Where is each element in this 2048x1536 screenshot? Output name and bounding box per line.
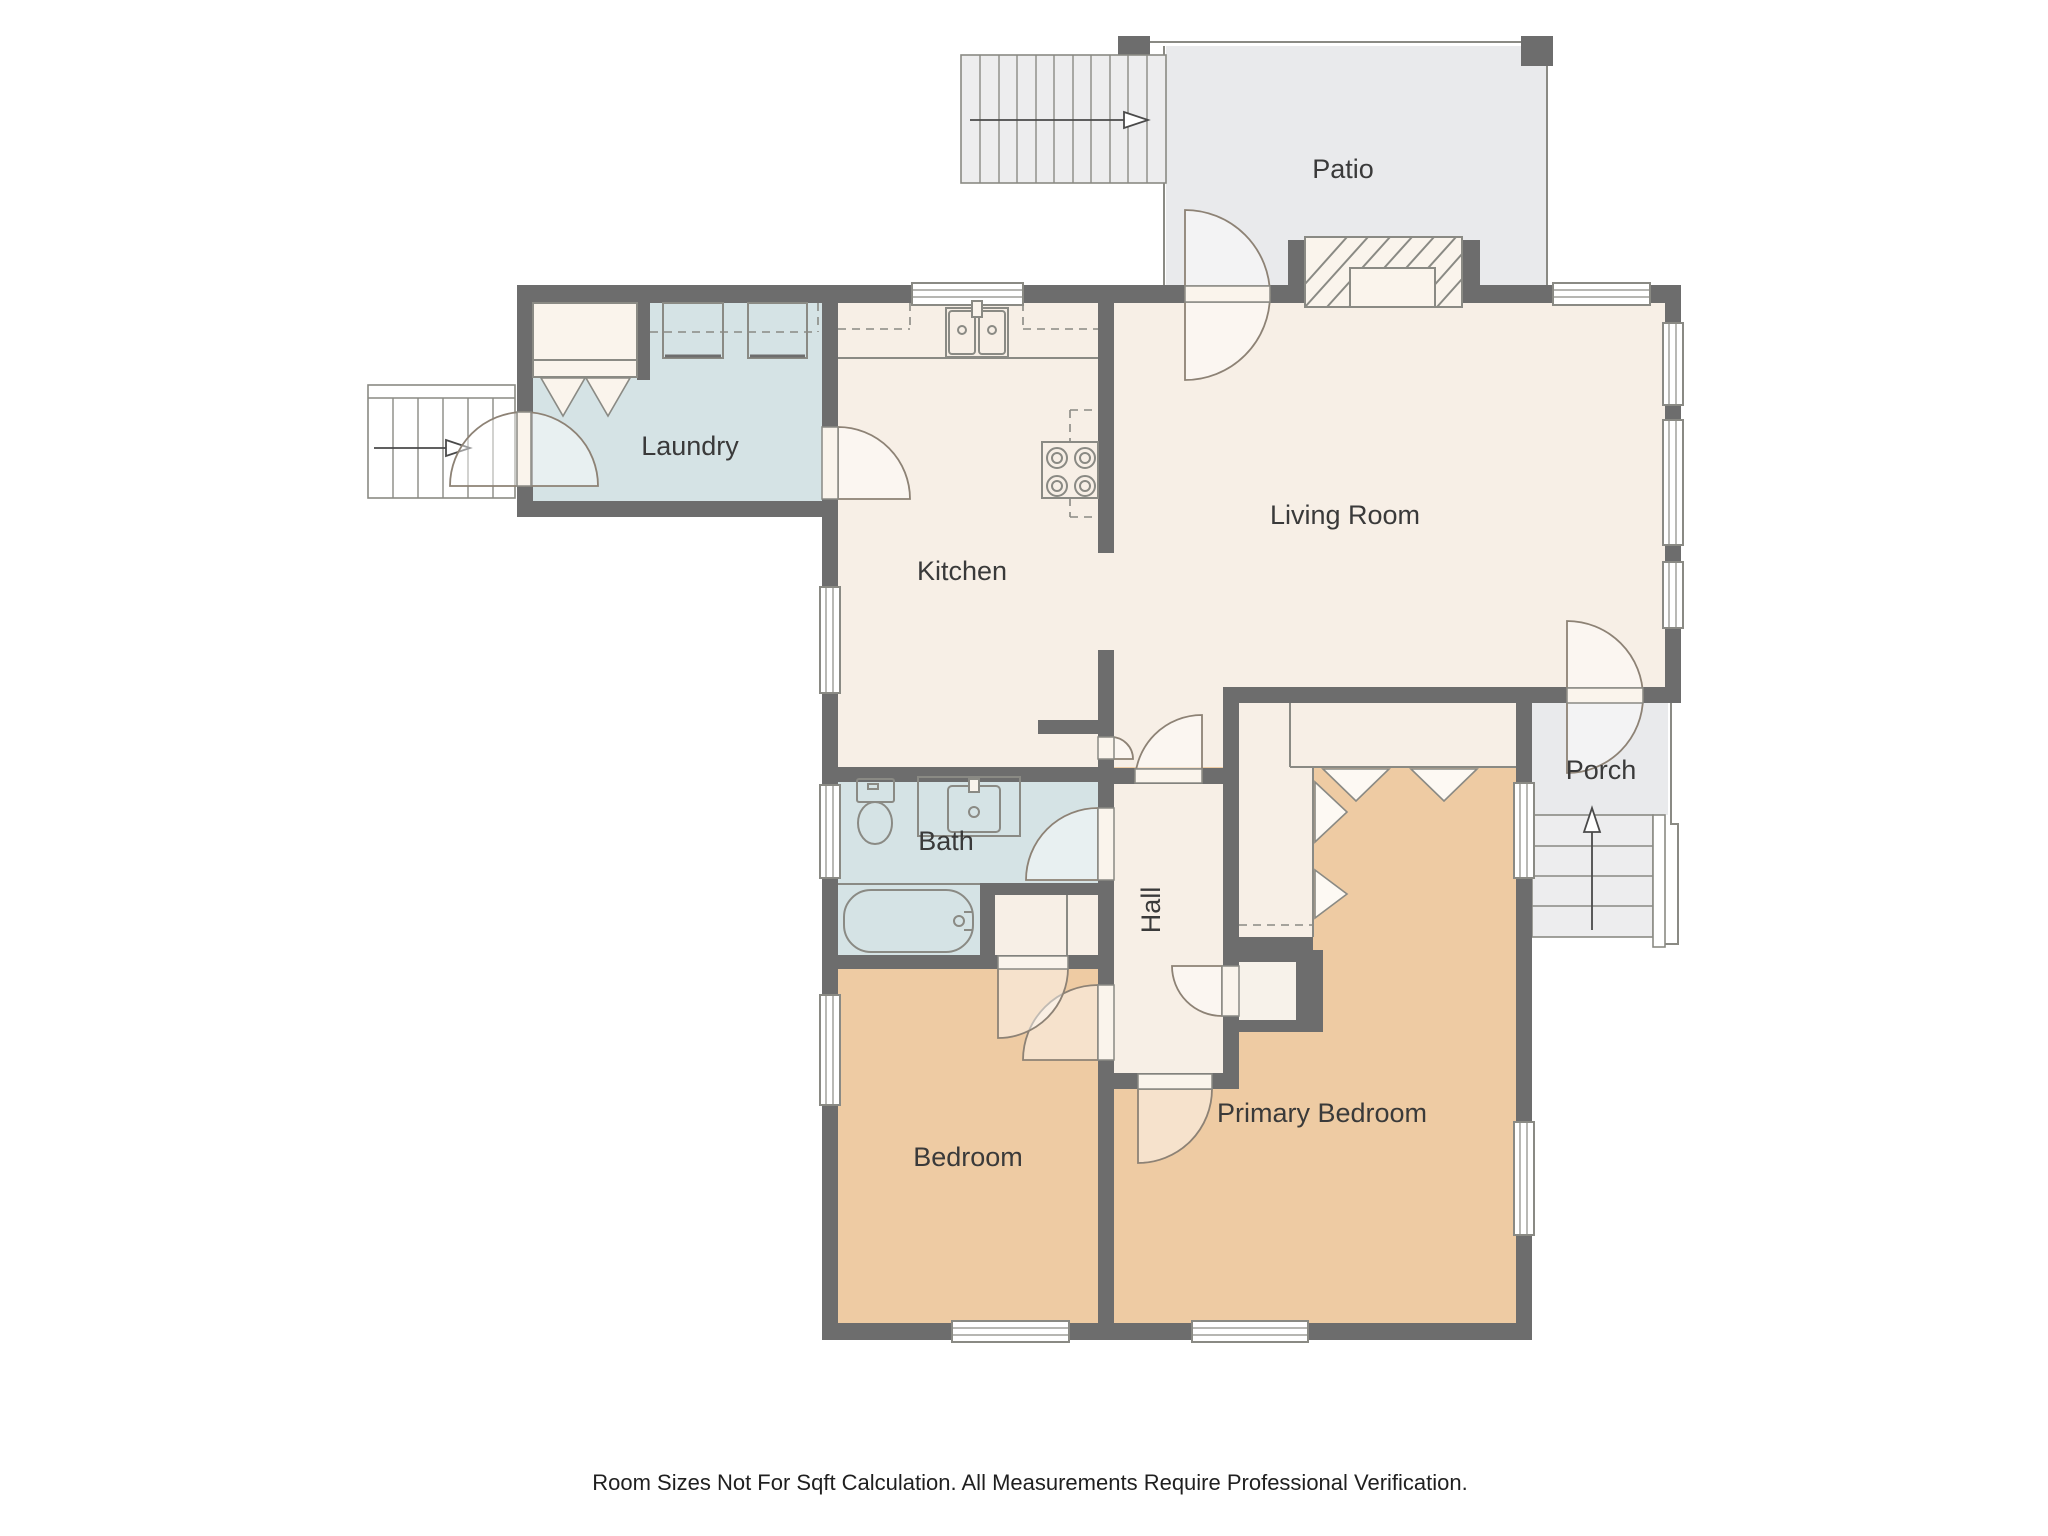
stairs-side-rail [1653,815,1665,947]
fireplace-icon [1305,237,1462,307]
disclaimer-text: Room Sizes Not For Sqft Calculation. All… [592,1470,1468,1495]
bedroom-label: Bedroom [913,1142,1023,1172]
linen-closet-floor [995,895,1098,955]
primary-bedroom-south-window [1192,1321,1308,1342]
floor-plan-page: Patio Laundry Kitchen Living Room Porch … [0,0,2048,1536]
hall-label: Hall [1136,887,1166,934]
living-room-east-window [1663,323,1683,405]
living-room-east-window [1663,562,1683,628]
patio-label: Patio [1312,154,1374,184]
bath-window [820,785,840,878]
kitchen-west-window [820,587,840,693]
kitchen-window [912,283,1023,305]
primary-closet-strip-floor [1239,767,1313,937]
primary-closet-floor [1239,703,1516,767]
hall-floor [1114,784,1223,1073]
laundry-closet [533,303,637,377]
patio-corner-post [1521,36,1553,66]
kitchen-label: Kitchen [917,556,1007,586]
exterior-stairs-top [961,55,1166,183]
kitchen-floor [838,303,1098,768]
laundry-label: Laundry [641,431,739,461]
living-room-label: Living Room [1270,500,1420,530]
primary-bedroom-label: Primary Bedroom [1217,1098,1427,1128]
porch-stairs [1532,808,1665,947]
primary-bedroom-east-window [1514,1122,1534,1235]
bedroom-west-window [820,995,840,1105]
hall-closet-floor [1239,962,1296,1020]
floor-plan-canvas: Patio Laundry Kitchen Living Room Porch … [0,0,2048,1536]
porch-window [1514,783,1534,878]
porch-label: Porch [1566,755,1637,785]
living-room-north-window [1553,283,1650,305]
bedroom-south-window [952,1321,1069,1342]
bath-label: Bath [918,826,974,856]
living-room-east-window [1663,420,1683,545]
kitchen-living-opening [1098,553,1114,650]
